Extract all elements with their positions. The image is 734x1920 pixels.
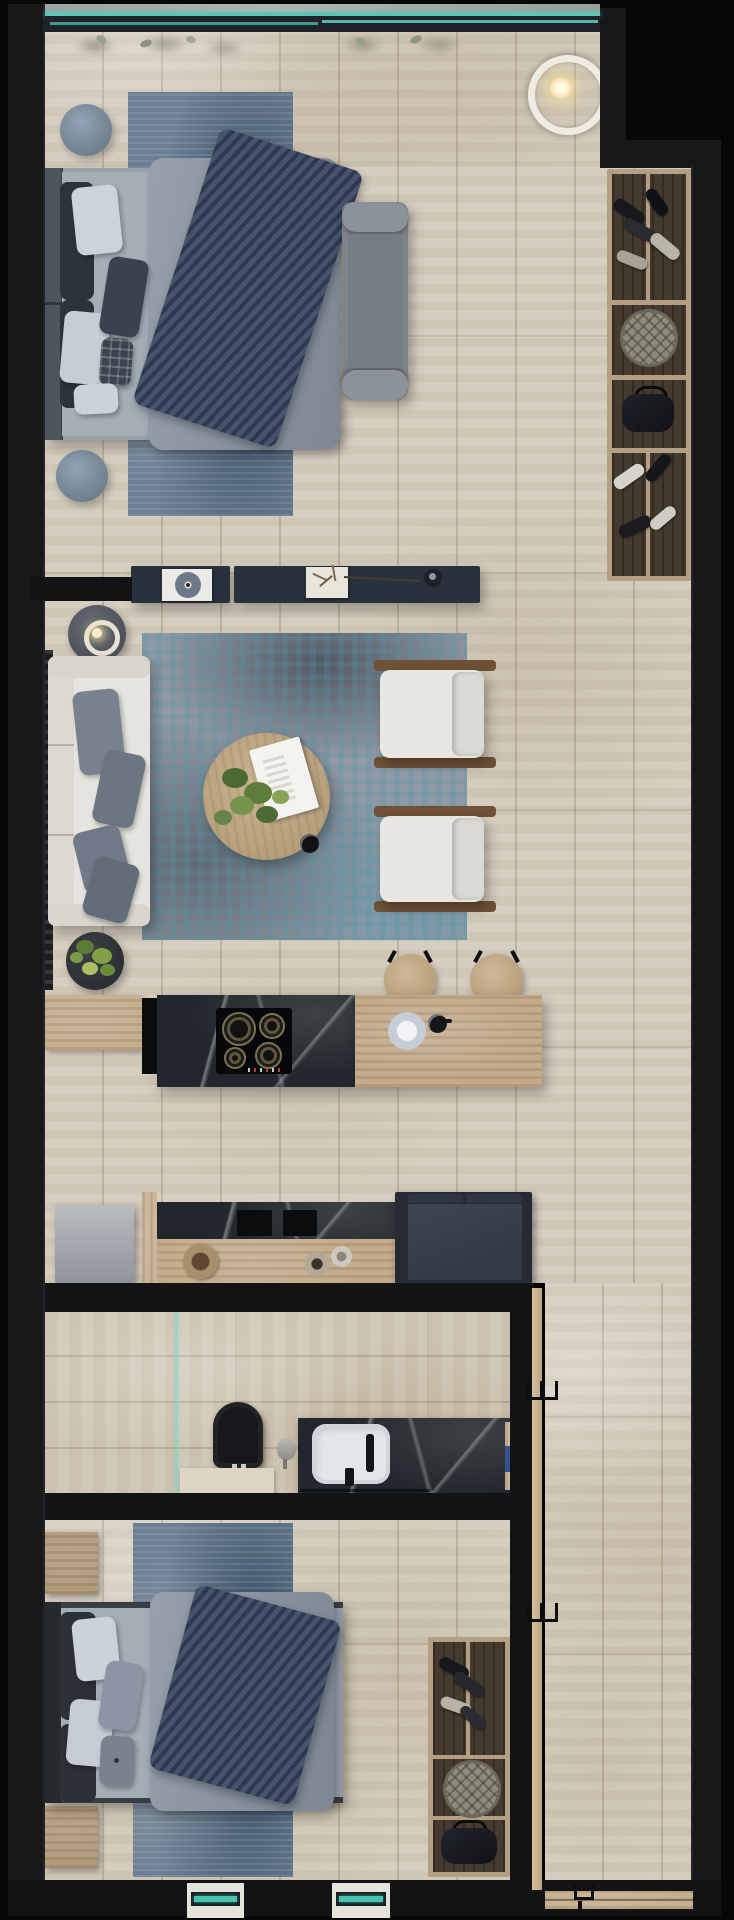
wardrobe2-shelf-1 bbox=[433, 1755, 505, 1759]
nightstand-top bbox=[45, 1532, 98, 1594]
wall-left bbox=[8, 4, 45, 1914]
ceramic-vase-1 bbox=[305, 1252, 329, 1276]
plant-leaves bbox=[100, 964, 115, 976]
floor-plan-render bbox=[0, 0, 734, 1920]
bench-roll-bottom bbox=[342, 370, 408, 400]
bathroom-door-handle-outer bbox=[542, 1381, 558, 1400]
closet-shelf-2 bbox=[612, 375, 686, 380]
window-top-glass-3 bbox=[322, 20, 598, 23]
cooktop-controls bbox=[248, 1068, 284, 1072]
bedroom1-pouf-bottom bbox=[56, 450, 108, 502]
gray-appliance-box bbox=[55, 1205, 134, 1283]
closet-handbag bbox=[622, 394, 674, 432]
bedroom2-door-handle-outer bbox=[542, 1603, 558, 1622]
table-plant bbox=[222, 768, 248, 788]
plant-leaves bbox=[92, 948, 112, 964]
console-cup-inner bbox=[429, 573, 436, 580]
bed2-headboard bbox=[45, 1602, 61, 1803]
espresso-cup bbox=[428, 1014, 447, 1033]
sofa-back-seam bbox=[48, 834, 74, 836]
cup-handle bbox=[445, 1019, 452, 1023]
faucet-handle bbox=[345, 1468, 354, 1486]
navy-cabinet-front bbox=[408, 1204, 522, 1280]
entrance-door-handle bbox=[574, 1884, 594, 1900]
paper-holder bbox=[277, 1438, 296, 1460]
wardrobe2-handbag bbox=[441, 1828, 497, 1864]
floor-hallway bbox=[545, 1283, 691, 1890]
wardrobe2-hat-box bbox=[443, 1760, 501, 1818]
serving-bowl bbox=[388, 1012, 426, 1050]
wall-right-column bbox=[510, 1283, 534, 1890]
bench-roll-top bbox=[342, 202, 408, 232]
kitchen-island-wood bbox=[355, 995, 542, 1087]
bed1-white-pillow-3 bbox=[73, 383, 119, 415]
burner-medium bbox=[259, 1013, 285, 1039]
bottom-window-right-glass bbox=[339, 1896, 383, 1902]
table-plant bbox=[272, 790, 289, 804]
glass-partition bbox=[175, 1312, 178, 1492]
plant-leaves bbox=[82, 962, 98, 975]
table-coffee-cup bbox=[300, 834, 319, 853]
burner-medium-2 bbox=[255, 1042, 282, 1069]
plant-shadow-right bbox=[320, 28, 490, 62]
navy-cabinet-lid-left bbox=[408, 1194, 463, 1203]
sofa-back-seam bbox=[48, 744, 74, 746]
bathroom-door-handle-inner bbox=[527, 1381, 543, 1400]
closet-hat-box bbox=[620, 309, 678, 367]
sink-cutout-right bbox=[283, 1210, 317, 1236]
kitchen-dark-gap bbox=[142, 998, 157, 1074]
bench-seat bbox=[348, 234, 402, 368]
bedroom2-door-handle-inner bbox=[527, 1603, 543, 1622]
candle bbox=[84, 620, 120, 656]
sofa-armrest-top bbox=[48, 656, 150, 678]
plant-leaves bbox=[70, 952, 83, 963]
vinyl-center-dot bbox=[186, 583, 190, 587]
black-faucet bbox=[366, 1434, 374, 1472]
paper-holder-bracket bbox=[283, 1459, 287, 1469]
wardrobe2-divider bbox=[466, 1642, 470, 1755]
plant-shadow-left bbox=[55, 28, 255, 64]
armchair1-rail-bottom bbox=[374, 757, 496, 768]
nightstand-bottom bbox=[45, 1806, 98, 1868]
console-right bbox=[234, 566, 480, 603]
armchair2-backrest bbox=[452, 818, 484, 900]
toilet-low-shelf bbox=[180, 1468, 274, 1494]
wooden-door-strip bbox=[532, 1288, 542, 1890]
pillow-button bbox=[114, 1758, 119, 1763]
wall-bathroom-bedroom2 bbox=[45, 1493, 534, 1520]
bed1-plaid-pillow bbox=[98, 337, 133, 387]
entrance-threshold-seam bbox=[545, 1899, 693, 1901]
wall-top-right-step bbox=[600, 140, 721, 168]
armchair2-rail-bottom bbox=[374, 901, 496, 912]
table-plant bbox=[256, 806, 278, 823]
bed1-white-pillow-1 bbox=[71, 184, 124, 256]
burner-large bbox=[222, 1012, 256, 1046]
wall-stub-bedroom-living bbox=[30, 577, 132, 601]
table-plant bbox=[214, 810, 232, 825]
pendant-bulb bbox=[550, 77, 572, 99]
wood-tray bbox=[183, 1244, 218, 1279]
bottom-window-left-glass bbox=[194, 1896, 237, 1902]
towel-rail bbox=[300, 1489, 430, 1492]
counter-wood-plank bbox=[142, 1192, 157, 1287]
lower-marble-counter bbox=[157, 1202, 395, 1239]
sofa-backrest bbox=[48, 656, 74, 926]
bed1-headboard-seam bbox=[45, 302, 61, 305]
wall-kitchen-bathroom bbox=[45, 1283, 534, 1312]
kitchen-left-counter bbox=[45, 995, 142, 1050]
closet-shelf-1 bbox=[612, 300, 686, 305]
sink-cutout-left bbox=[237, 1210, 272, 1236]
table-plant bbox=[230, 796, 254, 815]
bedroom1-pouf-top bbox=[60, 104, 112, 156]
entrance-handle-stem bbox=[578, 1901, 582, 1913]
burner-small bbox=[224, 1047, 246, 1069]
window-top-glass-2 bbox=[50, 22, 318, 25]
black-toilet bbox=[213, 1402, 263, 1468]
candle-flame bbox=[92, 628, 102, 638]
navy-cabinet-lid-right bbox=[466, 1194, 522, 1203]
wall-right bbox=[691, 166, 721, 1880]
armchair1-backrest bbox=[452, 672, 484, 756]
ceramic-vase-2 bbox=[331, 1246, 352, 1267]
